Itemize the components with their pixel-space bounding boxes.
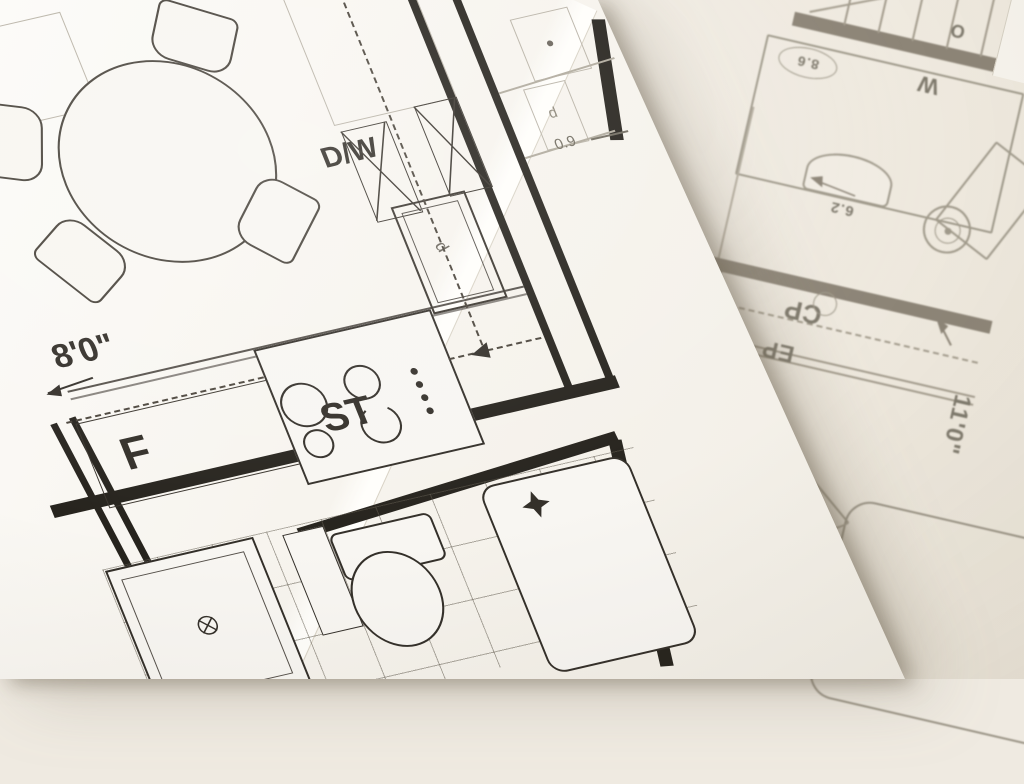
plan-detail-drawing <box>0 0 919 759</box>
top-sheet-wrapper: F 8'0" ST D/W d d 0.9 <box>0 0 1024 679</box>
top-blueprint-sheet: F 8'0" ST D/W d d 0.9 <box>0 0 1024 679</box>
blueprint-photo: { "left_plan": { "labels": { "dishwasher… <box>0 0 1024 679</box>
